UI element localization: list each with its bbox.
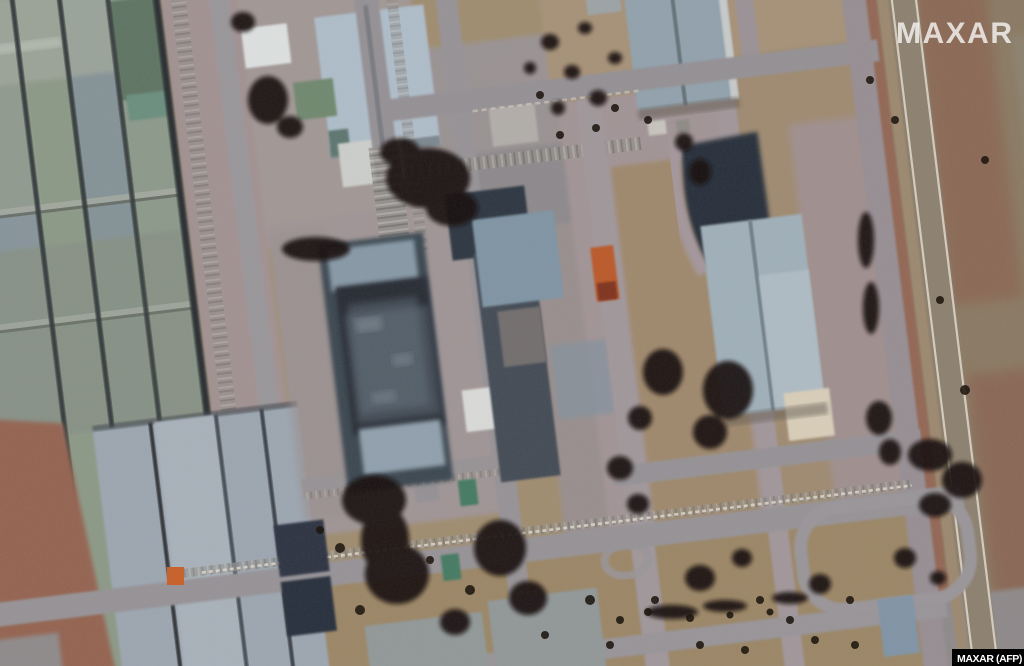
svg-text:MAXAR: MAXAR [896,17,1014,50]
svg-text:MAXAR (AFP): MAXAR (AFP) [957,653,1022,665]
